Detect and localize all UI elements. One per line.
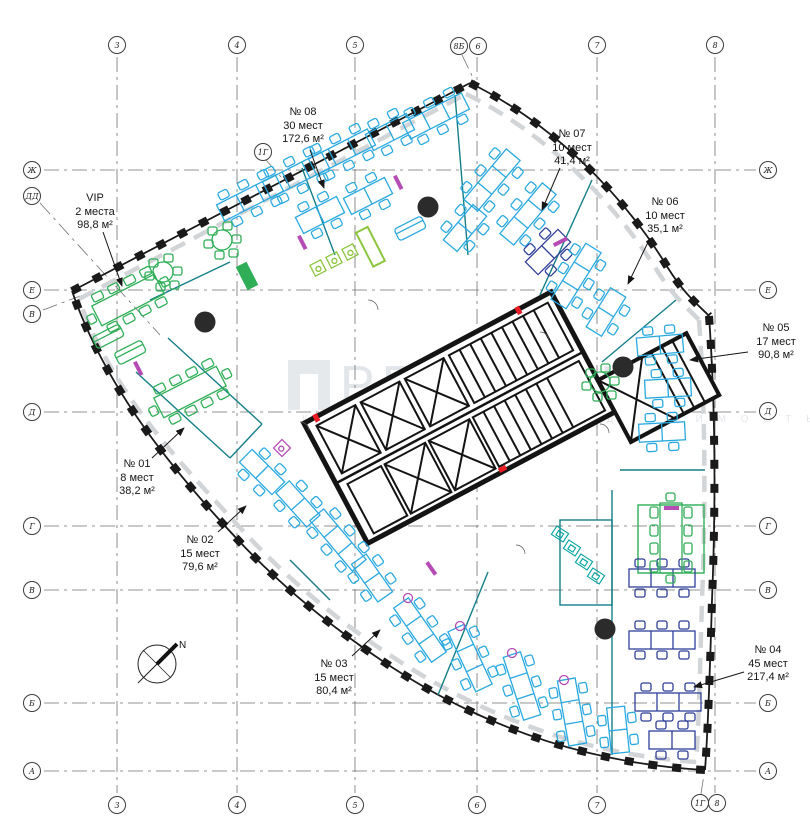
axis-bubble-5: 5 bbox=[346, 796, 364, 814]
zone-label-05: № 0517 мест90,8 м² bbox=[756, 322, 796, 363]
compass-north-icon: N bbox=[138, 640, 186, 683]
axis-bubble-1Г: 1Г bbox=[691, 794, 709, 812]
axis-bubble-В: В bbox=[23, 305, 41, 323]
floor-plan-page: { "title": "Поэтажный план офиса", "wate… bbox=[0, 0, 810, 818]
axis-bubble-Г: Г bbox=[759, 517, 777, 535]
axis-bubble-Б: Б bbox=[759, 694, 777, 712]
axis-bubble-Ж: Ж bbox=[759, 161, 777, 179]
furniture-zone-01 bbox=[140, 353, 239, 431]
axis-bubble-7: 7 bbox=[588, 36, 606, 54]
axis-bubble-3: 3 bbox=[108, 36, 126, 54]
axis-bubble-ДД: ДД bbox=[23, 187, 41, 205]
axis-bubble-Д: Д bbox=[23, 403, 41, 421]
axis-bubble-3: 3 bbox=[108, 796, 126, 814]
axis-bubble-6: 6 bbox=[468, 796, 486, 814]
floor-plan-drawing: N bbox=[0, 0, 810, 818]
axis-bubble-8Б: 8Б bbox=[450, 37, 468, 55]
zone-label-02: № 0215 мест79,6 м² bbox=[180, 534, 220, 575]
axis-bubble-А: А bbox=[759, 762, 777, 780]
zone-label-01: № 018 мест38,2 м² bbox=[119, 458, 155, 499]
axis-bubble-В: В bbox=[759, 581, 777, 599]
axis-bubble-А: А bbox=[23, 762, 41, 780]
zone-label-03: № 0315 мест80,4 м² bbox=[314, 658, 354, 699]
axis-bubble-1Г: 1Г bbox=[254, 143, 272, 161]
axis-bubble-4: 4 bbox=[228, 36, 246, 54]
zone-label-08: № 0830 мест172,6 м² bbox=[282, 106, 324, 147]
compass-label: N bbox=[179, 640, 186, 651]
furniture-zone-04 bbox=[629, 493, 701, 759]
axis-bubble-Д: Д bbox=[759, 402, 777, 420]
axis-bubble-Б: Б bbox=[23, 694, 41, 712]
axis-bubble-8: 8 bbox=[708, 794, 726, 812]
zone-label-06: № 0610 мест35,1 м² bbox=[645, 196, 685, 237]
axis-bubble-В: В bbox=[23, 581, 41, 599]
axis-bubble-6: 6 bbox=[469, 37, 487, 55]
axis-bubble-Е: Е bbox=[23, 281, 41, 299]
axis-bubble-7: 7 bbox=[588, 796, 606, 814]
axis-bubble-Е: Е bbox=[759, 281, 777, 299]
axis-bubble-Ж: Ж bbox=[23, 161, 41, 179]
zone-label-04: № 0445 мест217,4 м² bbox=[747, 644, 789, 685]
axis-bubble-4: 4 bbox=[228, 796, 246, 814]
axis-bubble-8: 8 bbox=[706, 36, 724, 54]
axis-bubble-Г: Г bbox=[23, 517, 41, 535]
zone-label-07: № 0710 мест41,4 м² bbox=[552, 128, 592, 169]
axis-bubble-5: 5 bbox=[346, 36, 364, 54]
zone-label-vip: VIP2 места98,8 м² bbox=[75, 192, 114, 233]
